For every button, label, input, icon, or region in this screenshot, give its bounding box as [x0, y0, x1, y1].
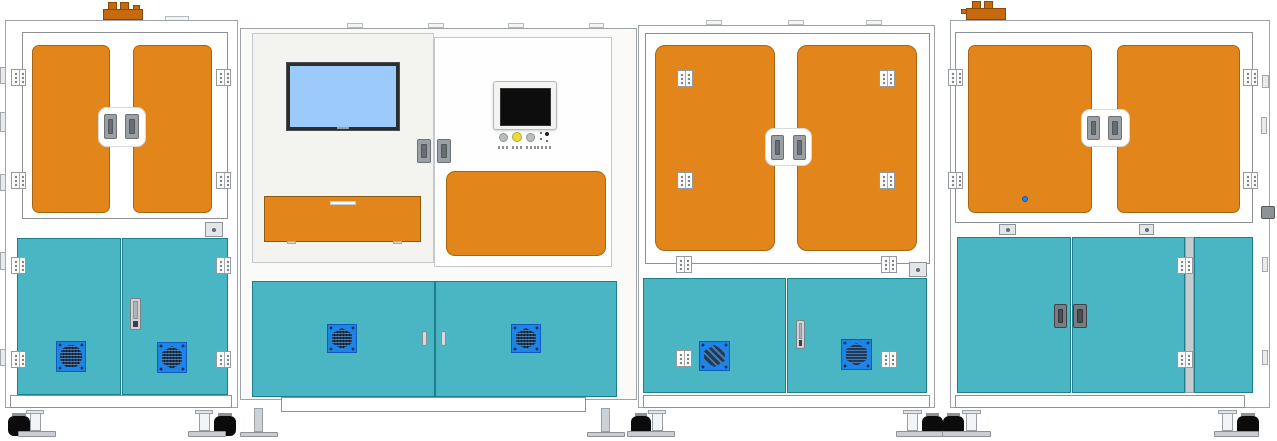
roof-vent-cap [966, 8, 1006, 20]
door-handle [1108, 116, 1122, 140]
edge-hinge-mark [1262, 350, 1268, 365]
hinge-icon [948, 69, 963, 86]
edge-hinge-mark [1261, 117, 1267, 134]
foot-base-plate [1214, 431, 1259, 437]
hinge-icon [1243, 69, 1258, 86]
cap-nub [961, 9, 967, 14]
door-handle [1054, 304, 1067, 328]
mounting-plate [999, 224, 1016, 235]
upper-door-right [1117, 45, 1240, 213]
mounting-plate [1139, 224, 1154, 235]
side-latch [1261, 206, 1275, 219]
indicator-dot [1022, 196, 1028, 202]
cap-bump [972, 1, 981, 9]
door-handle [1087, 116, 1100, 140]
hinge-icon [1243, 172, 1258, 189]
machine-diagram [0, 0, 1277, 441]
edge-hinge-mark [1262, 75, 1269, 88]
lower-door-right [1194, 237, 1253, 393]
upper-door-left [968, 45, 1092, 213]
module-right-cabinet [0, 0, 1277, 441]
base-rail [955, 395, 1245, 408]
leveling-foot [1222, 413, 1233, 431]
cap-bump [984, 1, 993, 9]
door-handle [1073, 304, 1087, 328]
edge-hinge-mark [1262, 257, 1268, 272]
hinge-icon [948, 172, 963, 189]
hinge-icon [1177, 257, 1193, 274]
hinge-icon [1177, 351, 1193, 368]
lower-door-middle [1072, 237, 1185, 393]
